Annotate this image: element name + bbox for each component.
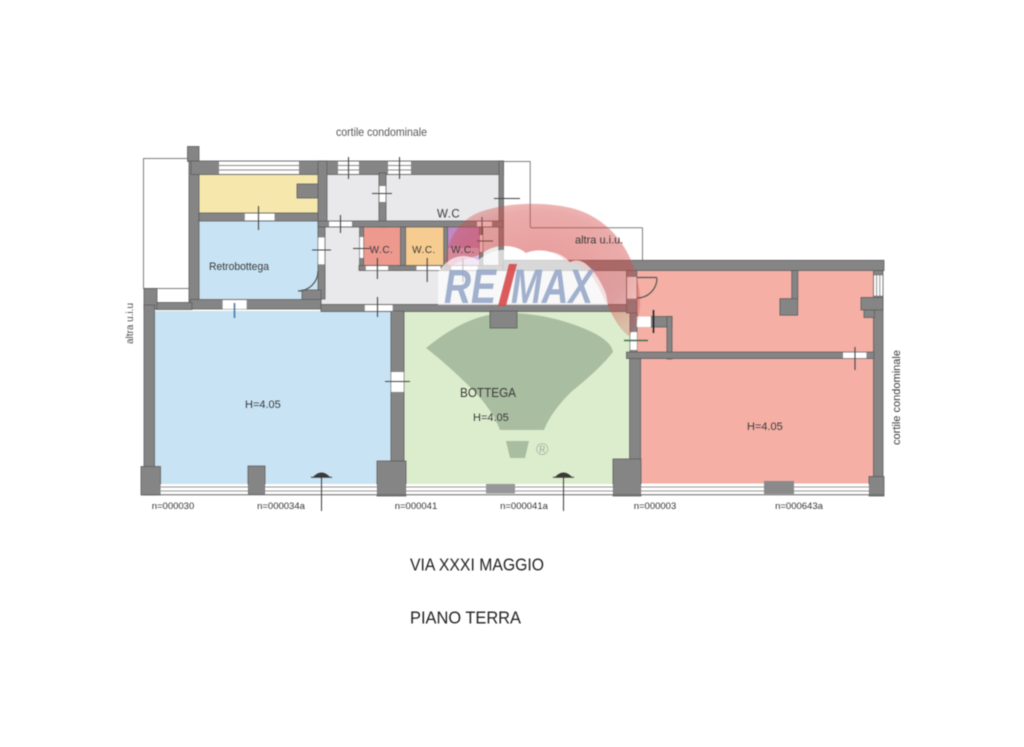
svg-text:altra u.i.u: altra u.i.u xyxy=(125,303,136,344)
svg-text:H=4.05: H=4.05 xyxy=(245,399,281,411)
svg-text:RE: RE xyxy=(444,261,498,314)
svg-text:Retrobottega: Retrobottega xyxy=(209,261,270,273)
svg-text:PIANO TERRA: PIANO TERRA xyxy=(410,608,521,628)
svg-text:MAX: MAX xyxy=(511,261,595,314)
svg-text:n=000041a: n=000041a xyxy=(500,501,549,512)
svg-text:H=4.05: H=4.05 xyxy=(473,412,509,424)
svg-text:altra u.i.u.: altra u.i.u. xyxy=(575,235,623,247)
svg-text:n=000643a: n=000643a xyxy=(775,501,824,512)
svg-text:W.C.: W.C. xyxy=(412,245,436,256)
svg-text:BOTTEGA: BOTTEGA xyxy=(460,386,517,400)
svg-text:H=4.05: H=4.05 xyxy=(747,421,783,433)
svg-text:n=000003: n=000003 xyxy=(634,501,677,512)
svg-text:W.C: W.C xyxy=(437,209,460,221)
svg-text:n=000034a: n=000034a xyxy=(257,501,306,512)
svg-text:W.C.: W.C. xyxy=(451,245,475,256)
svg-text:n=000030: n=000030 xyxy=(152,501,195,512)
svg-text:cortile condominale: cortile condominale xyxy=(336,125,427,139)
svg-text:®: ® xyxy=(536,440,549,459)
svg-text:cortile condominale: cortile condominale xyxy=(891,350,903,445)
svg-text:n=000041: n=000041 xyxy=(395,501,438,512)
svg-text:VIA XXXI MAGGIO: VIA XXXI MAGGIO xyxy=(410,555,544,575)
svg-text:W.C.: W.C. xyxy=(370,245,394,256)
